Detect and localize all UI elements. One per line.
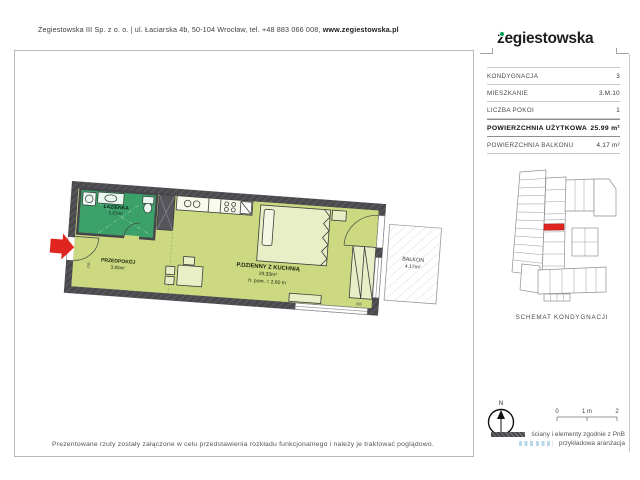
footer-disclaimer: Prezentowane rzuty zostały załączone w c… (14, 441, 472, 448)
table-row-usable-area: POWIERZCHNIA UŻYTKOWA 25.99 m² (487, 119, 620, 137)
company-url-link[interactable]: www.zegiestowska.pl (323, 25, 399, 34)
row-value: 3.M.10 (599, 90, 620, 97)
svg-text:1 m: 1 m (582, 409, 592, 415)
page-margin-rule (629, 54, 630, 452)
installation-shaft (157, 194, 176, 230)
table-row: LICZBA POKOI 1 (487, 102, 620, 119)
company-header: Żegiestowska III Sp. z o. o. | ul. Łacia… (38, 25, 399, 34)
svg-text:2.83m²: 2.83m² (108, 210, 123, 216)
floor-plan-sheet: { "page": { "header": { "text": "Żegiest… (0, 0, 640, 480)
key-plan-highlighted-unit (544, 224, 564, 231)
legend-item-furnishing: przykładowa aranżacja (480, 440, 625, 447)
brand-logo-text: żegiestowska (497, 30, 593, 47)
walls-swatch-icon (491, 432, 525, 437)
legend: ściany i elementy zgodnie z PnB przykład… (480, 431, 625, 447)
svg-text:0: 0 (555, 409, 559, 415)
scale-bar: 0 1 m 2 (552, 406, 622, 422)
svg-text:4.17m²: 4.17m² (405, 264, 421, 271)
table-row: MIESZKANIE 3.M.10 (487, 85, 620, 102)
row-value: 3 (616, 73, 620, 80)
key-plan (506, 166, 618, 308)
wardrobe (349, 246, 376, 300)
svg-text:N: N (499, 401, 503, 407)
dimension-label: 805 (356, 302, 363, 306)
table-row: KONDYGNACJA 3 (487, 67, 620, 85)
table-row: POWIERZCHNIA BALKONU 4.17 m² (487, 137, 620, 154)
crop-mark-right (616, 48, 629, 54)
legend-item-walls: ściany i elementy zgodnie z PnB (480, 431, 625, 438)
crop-mark-left (480, 48, 493, 54)
svg-text:3.83m²: 3.83m² (110, 265, 125, 271)
row-value: 4.17 m² (597, 142, 620, 149)
room-balcony: BALKON 4.17m² (384, 224, 441, 304)
brand-logo: żegiestowska (497, 30, 593, 48)
apartment-info-table: KONDYGNACJA 3 MIESZKANIE 3.M.10 LICZBA P… (487, 67, 620, 154)
row-label: MIESZKANIE (487, 90, 528, 97)
row-label: KONDYGNACJA (487, 73, 538, 80)
bed (257, 205, 331, 266)
row-value: 25.99 m² (590, 125, 620, 132)
row-label: POWIERZCHNIA UŻYTKOWA (487, 125, 587, 132)
company-info: Żegiestowska III Sp. z o. o. | ul. Łacia… (38, 25, 321, 34)
furnishing-swatch-icon (519, 441, 553, 446)
brand-accent-dot-icon (500, 32, 504, 36)
row-label: LICZBA POKOI (487, 107, 534, 114)
row-value: 1 (616, 107, 620, 114)
legend-label: przykładowa aranżacja (559, 440, 625, 447)
room-bathroom: ŁAZIENKA 2.83m² (77, 189, 157, 242)
svg-text:2: 2 (615, 409, 619, 415)
nightstand (332, 210, 347, 221)
row-label: POWIERZCHNIA BALKONU (487, 142, 573, 149)
dimension-label: 250 (87, 262, 91, 269)
svg-text:19.33m²: 19.33m² (258, 271, 277, 278)
key-plan-caption: SCHEMAT KONDYGNACJI (497, 314, 627, 321)
legend-label: ściany i elementy zgodnie z PnB (531, 431, 625, 438)
